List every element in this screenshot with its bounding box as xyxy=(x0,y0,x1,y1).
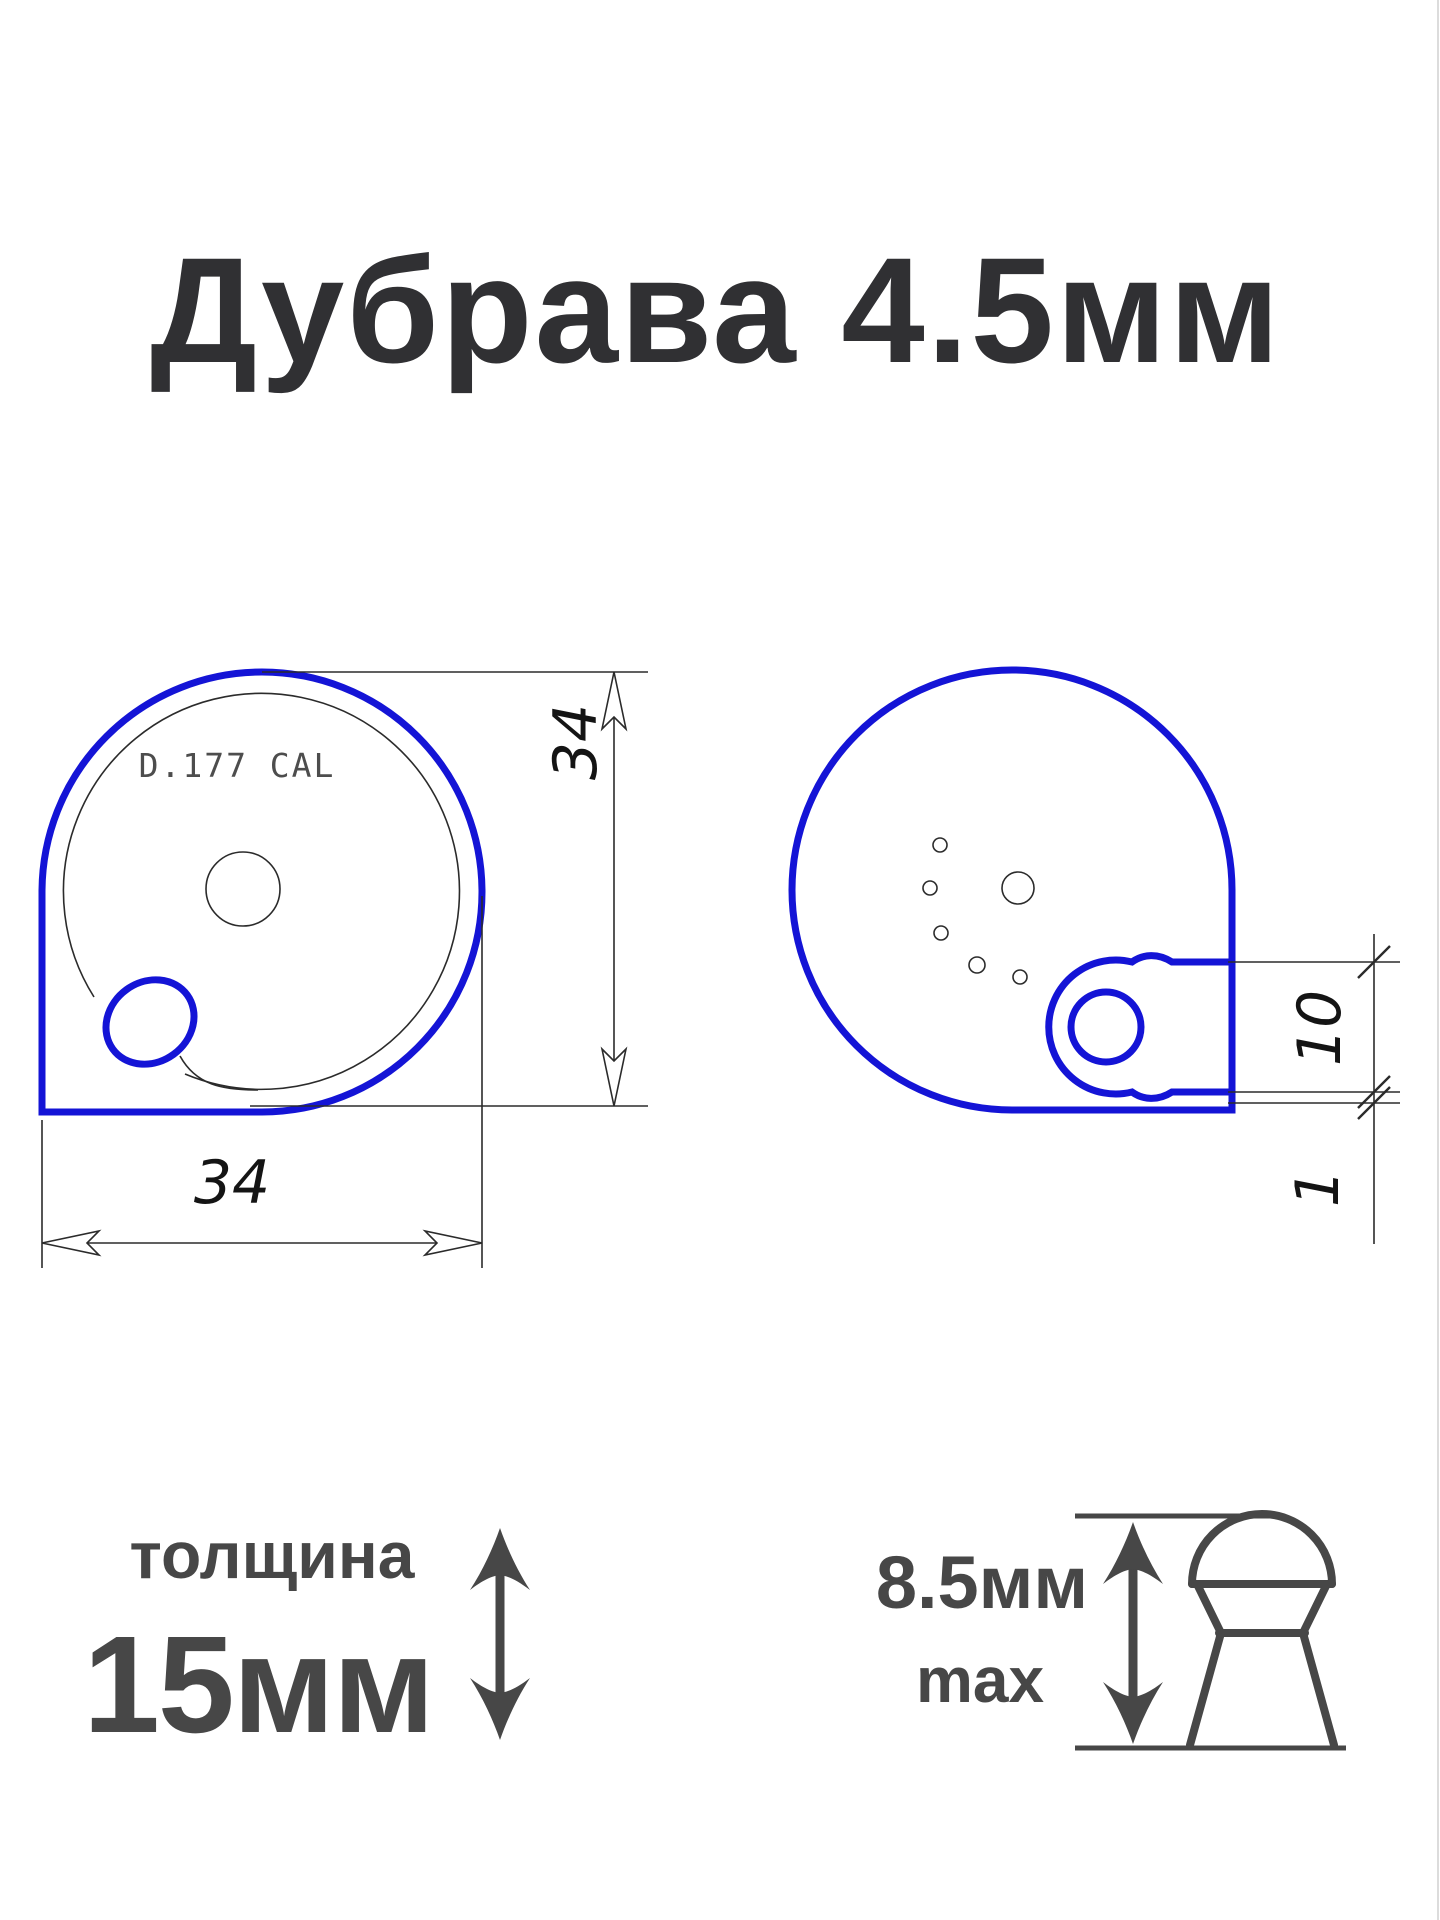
caliber-engraving: D.177 CAL xyxy=(139,746,336,785)
small-hole xyxy=(934,926,948,940)
front-exit-hole xyxy=(89,963,210,1082)
product-diagram-page: Дубрава 4.5мм D.177 CAL 34 xyxy=(0,0,1440,1920)
back-ear-dimension: 10 1 xyxy=(1228,934,1400,1244)
thickness-label: толщина xyxy=(130,1518,416,1592)
small-hole xyxy=(1013,970,1027,984)
back-view: 10 1 xyxy=(792,670,1400,1244)
pellet-max-label: max xyxy=(916,1644,1045,1716)
back-small-holes xyxy=(923,838,1034,984)
ear-height-dim-value: 10 xyxy=(1285,990,1355,1066)
page-title: Дубрава 4.5мм xyxy=(150,226,1282,394)
back-center-hole xyxy=(1002,872,1034,904)
front-width-dimension: 34 xyxy=(42,896,482,1268)
pellet-profile-icon xyxy=(1190,1514,1334,1745)
front-center-hole xyxy=(206,852,280,926)
small-hole xyxy=(969,957,985,973)
small-hole xyxy=(933,838,947,852)
front-view: D.177 CAL 34 34 xyxy=(42,672,648,1268)
width-dim-value: 34 xyxy=(194,1148,270,1218)
thickness-value: 15мм xyxy=(83,1608,433,1762)
lip-dim-value: 1 xyxy=(1283,1169,1353,1207)
height-dim-value: 34 xyxy=(541,704,611,780)
pellet-note: 8.5мм max xyxy=(876,1514,1346,1748)
pellet-height-value: 8.5мм xyxy=(876,1541,1088,1624)
front-height-dimension: 34 xyxy=(250,672,648,1106)
thickness-arrow-icon xyxy=(470,1528,530,1740)
pellet-height-arrow-icon xyxy=(1103,1522,1163,1744)
small-hole xyxy=(923,881,937,895)
back-ear-hole xyxy=(1071,992,1141,1062)
thickness-note: толщина 15мм xyxy=(83,1518,530,1762)
back-outline xyxy=(792,670,1232,1110)
